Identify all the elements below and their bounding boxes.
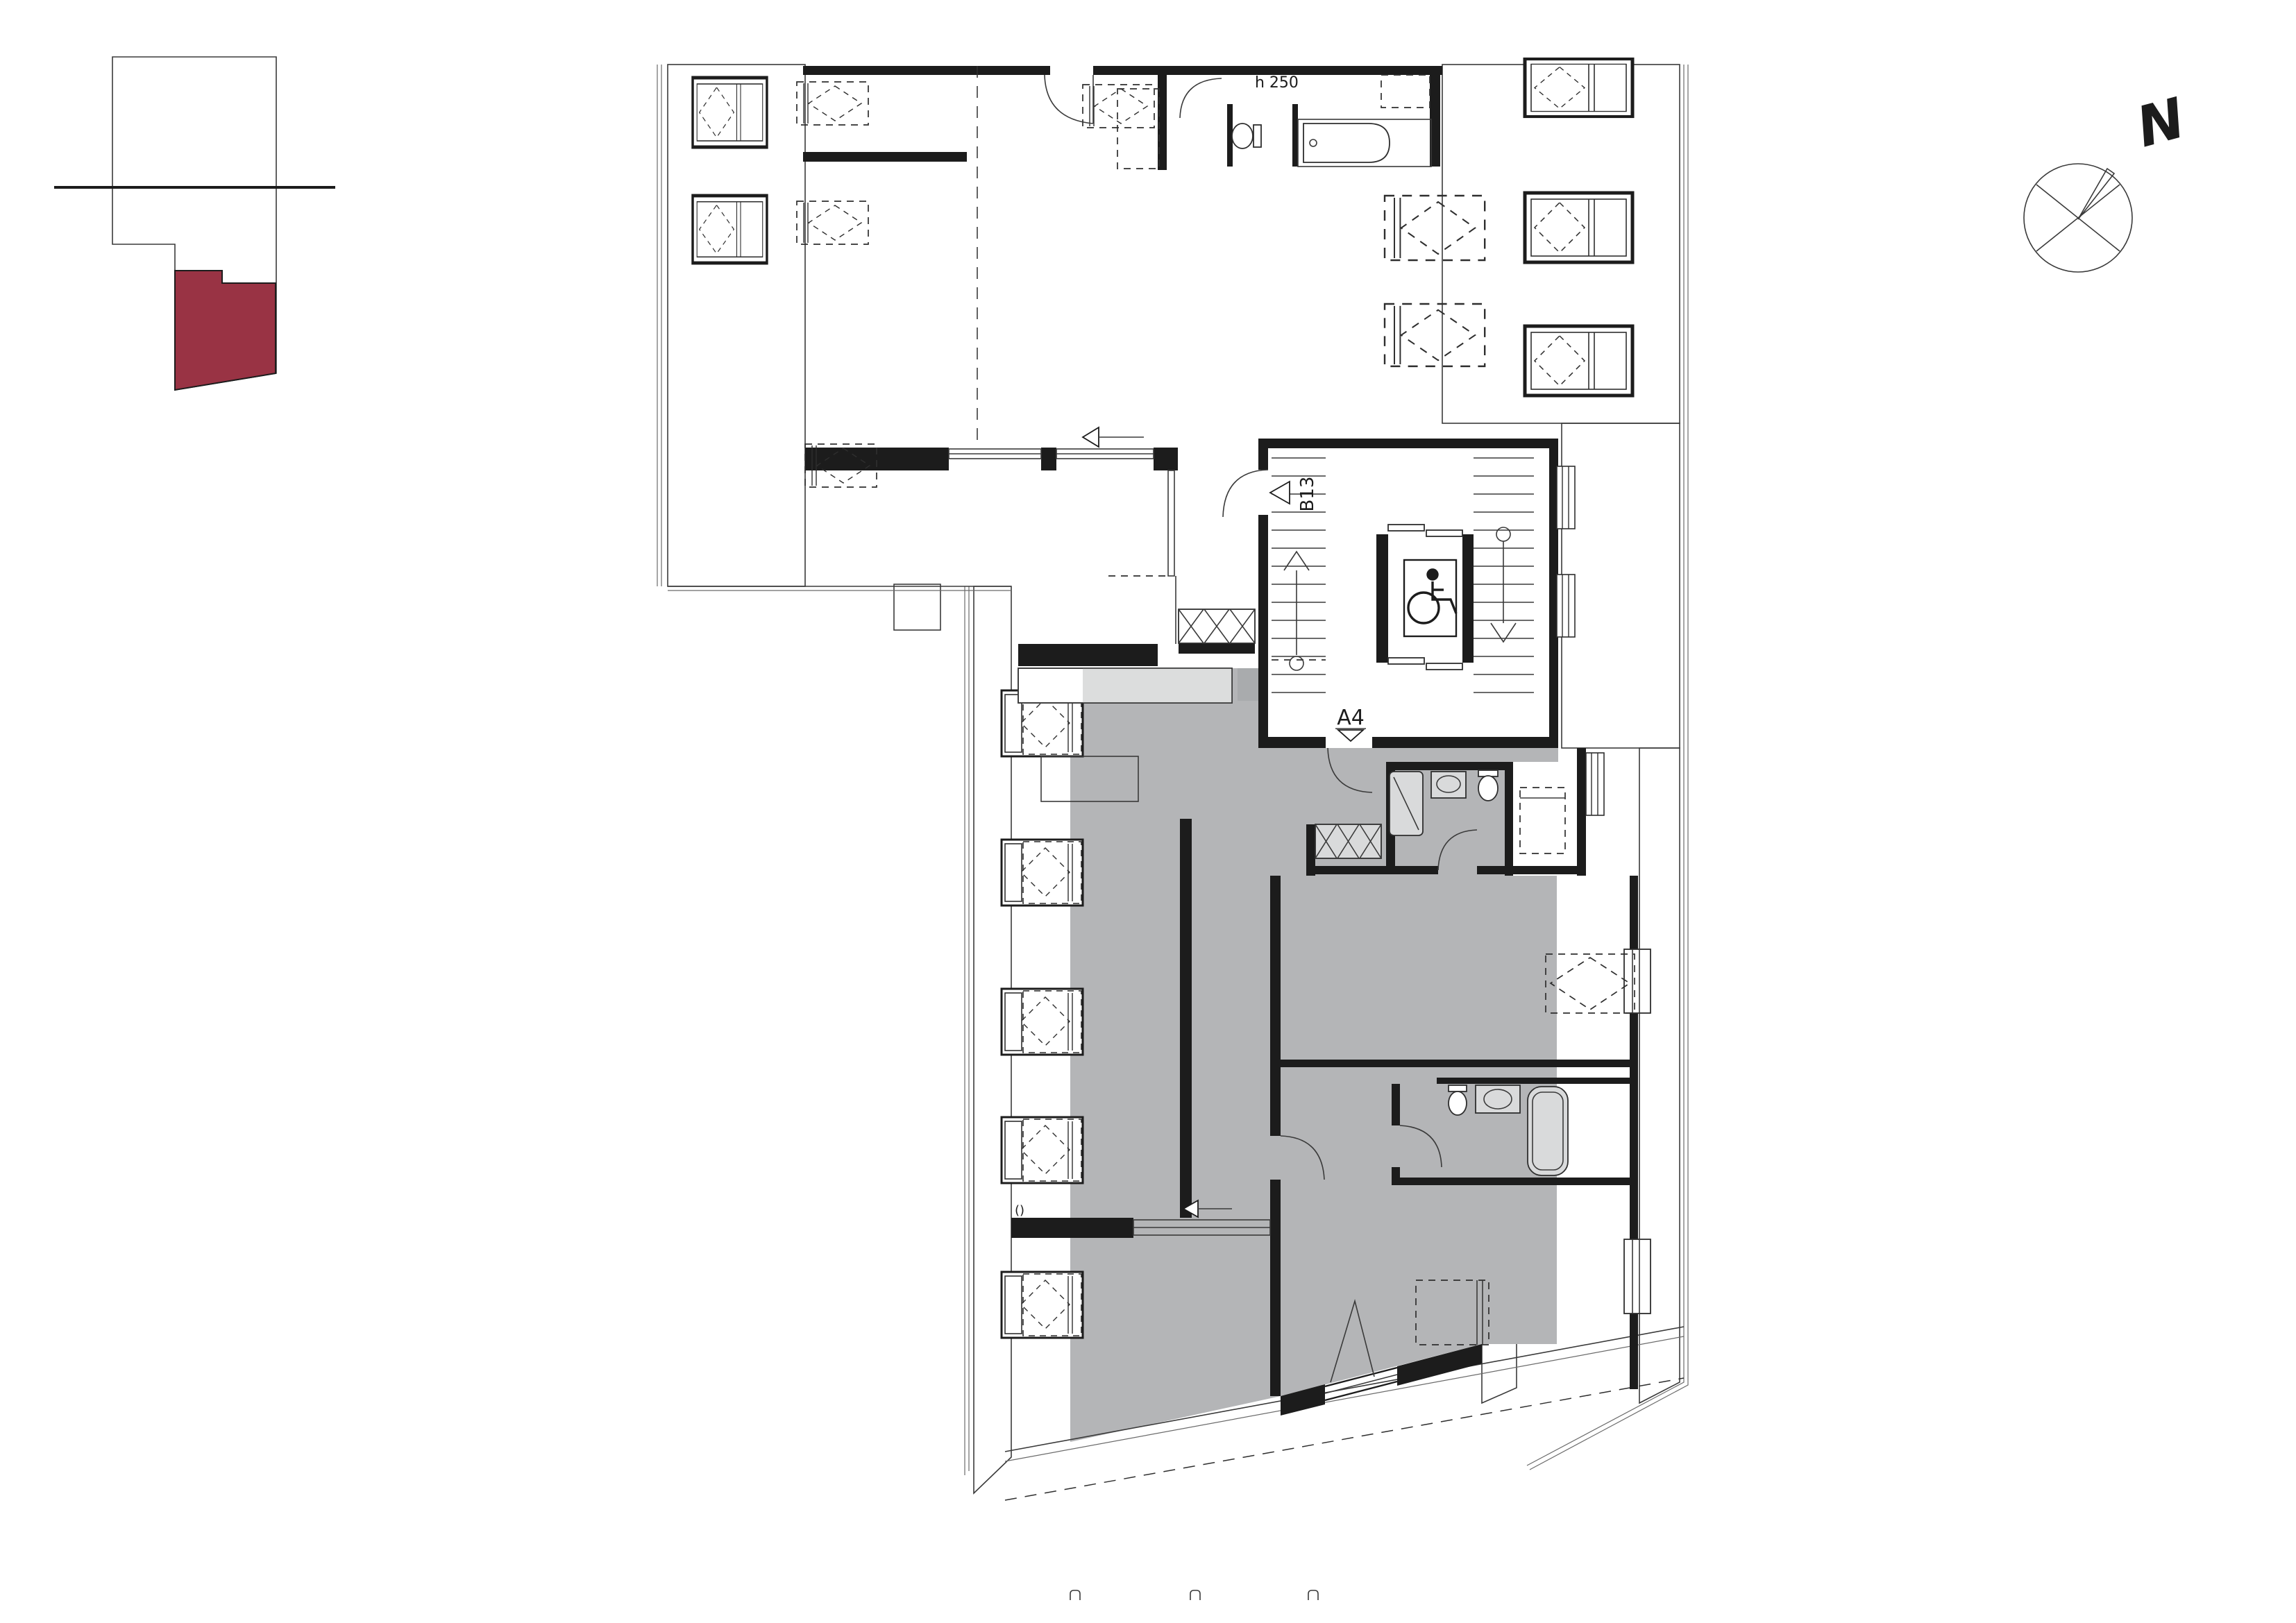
key-plan bbox=[54, 57, 335, 390]
plan-canvas: N bbox=[0, 0, 2296, 1623]
floor-plan-sheet: N bbox=[0, 0, 2296, 1623]
bed bbox=[1546, 954, 1635, 1013]
bidet bbox=[1449, 1091, 1467, 1115]
right-wall-window bbox=[1624, 949, 1651, 1013]
appliance bbox=[1238, 668, 1258, 701]
roof-strip-mid-right bbox=[1562, 423, 1680, 748]
wardrobe-upper bbox=[1179, 609, 1255, 643]
floor-plan: h 250 B13 A4 () bbox=[657, 59, 1688, 1600]
section-marks bbox=[1070, 1590, 1318, 1600]
b13-label: B13 bbox=[1297, 477, 1318, 512]
door-arc bbox=[1045, 75, 1093, 124]
a4-label: A4 bbox=[1337, 706, 1365, 730]
wheelchair-icon bbox=[1408, 570, 1456, 623]
a4-arrow bbox=[1338, 730, 1363, 741]
stair-down-arrow bbox=[1491, 623, 1516, 642]
upper-bathroom-fixtures bbox=[1232, 119, 1431, 167]
key-plan-highlight-unit bbox=[175, 271, 276, 390]
elevator-shaft-wall bbox=[1462, 534, 1474, 663]
toilet bbox=[1232, 124, 1253, 148]
north-compass: N bbox=[2024, 85, 2192, 272]
stair-up-arrow bbox=[1284, 552, 1309, 570]
bathtub bbox=[1528, 1087, 1568, 1175]
door-arc bbox=[1180, 78, 1222, 118]
elevator-shaft-wall bbox=[1376, 534, 1388, 663]
right-wall-window bbox=[1624, 1239, 1651, 1314]
side-glazing bbox=[1168, 470, 1174, 576]
b13-arrow bbox=[1270, 482, 1290, 504]
door-arc-b13 bbox=[1223, 470, 1268, 517]
north-label: N bbox=[2130, 85, 2192, 160]
paren-note: () bbox=[1015, 1203, 1024, 1218]
hall-wardrobe bbox=[1315, 824, 1381, 858]
dashed-shower bbox=[1381, 75, 1430, 108]
roof-patch bbox=[894, 584, 940, 630]
height-note: h 250 bbox=[1255, 74, 1299, 92]
toilet bbox=[1478, 776, 1498, 801]
